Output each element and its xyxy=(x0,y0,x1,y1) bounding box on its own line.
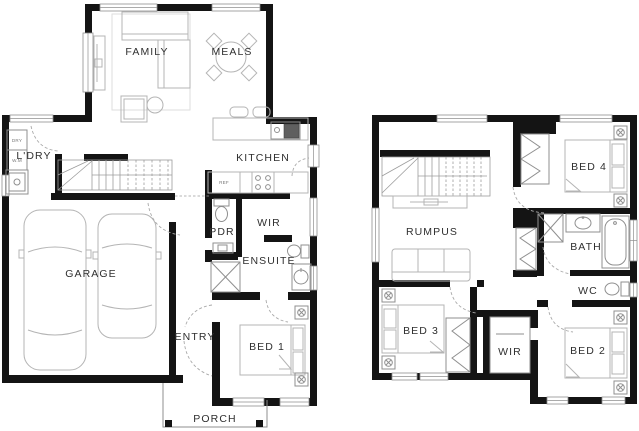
appliance-label-fridge: REF xyxy=(219,180,229,185)
car-1 xyxy=(19,210,91,370)
room-label-bed3: BED 3 xyxy=(403,325,439,337)
toilet-pdr xyxy=(214,199,229,222)
cooktop xyxy=(256,176,271,190)
shower-ensuite xyxy=(211,262,240,292)
room-label-pdr: PDR xyxy=(209,226,234,238)
room-label-bed1: BED 1 xyxy=(249,341,285,353)
room-label-ensuite: ENSUITE xyxy=(242,255,295,267)
appliance-label-dryer: DRY xyxy=(12,138,22,143)
upper-floor-plan: RUMPUS BED 4 BATH WC BED 3 WIR BED 2 xyxy=(372,115,637,404)
room-label-wc: WC xyxy=(578,285,598,297)
wc-room xyxy=(605,282,629,296)
stairs-ground xyxy=(58,160,210,196)
room-label-garage: GARAGE xyxy=(65,268,117,280)
room-label-kitchen: KITCHEN xyxy=(236,152,290,164)
vanity-bath xyxy=(566,214,600,232)
room-label-bath: BATH xyxy=(570,241,602,253)
appliance-label-washer: W.M xyxy=(12,158,22,163)
laundry-tub xyxy=(6,170,28,194)
room-label-entry: ENTRY xyxy=(175,331,216,343)
room-label-family: FAMILY xyxy=(125,46,168,58)
rumpus-area xyxy=(392,196,470,281)
vanity-ensuite xyxy=(292,264,311,290)
wir-upper-room xyxy=(490,317,530,373)
sofa-rumpus xyxy=(392,249,470,281)
linen-closet xyxy=(516,228,536,270)
bathtub xyxy=(602,216,629,268)
tv-unit xyxy=(94,36,105,90)
room-label-wir-ground: WIR xyxy=(257,217,281,229)
family-room xyxy=(94,12,190,122)
room-label-porch: PORCH xyxy=(193,413,236,425)
upper-floor-walls xyxy=(372,115,637,404)
kitchen-sink xyxy=(271,122,300,139)
room-label-bed2: BED 2 xyxy=(570,345,606,357)
floor-plan-canvas: FAMILY MEALS KITCHEN L'DRY DRY W.M REF P… xyxy=(0,0,639,431)
room-label-bed4: BED 4 xyxy=(571,161,607,173)
upper-floor-windows xyxy=(372,115,637,404)
garage-area xyxy=(19,210,161,370)
tv-unit-rumpus xyxy=(393,196,467,208)
room-label-meals: MEALS xyxy=(211,46,252,58)
ground-floor-labels: FAMILY MEALS KITCHEN L'DRY DRY W.M REF P… xyxy=(12,46,296,425)
bed3-robe xyxy=(446,318,470,372)
stairs-upper xyxy=(382,157,490,196)
ground-floor-plan: FAMILY MEALS KITCHEN L'DRY DRY W.M REF P… xyxy=(2,4,319,427)
room-label-rumpus: RUMPUS xyxy=(406,226,458,238)
room-label-wir-upper: WIR xyxy=(498,346,522,358)
bed4-robe xyxy=(521,134,549,184)
toilet-wc xyxy=(605,282,629,296)
